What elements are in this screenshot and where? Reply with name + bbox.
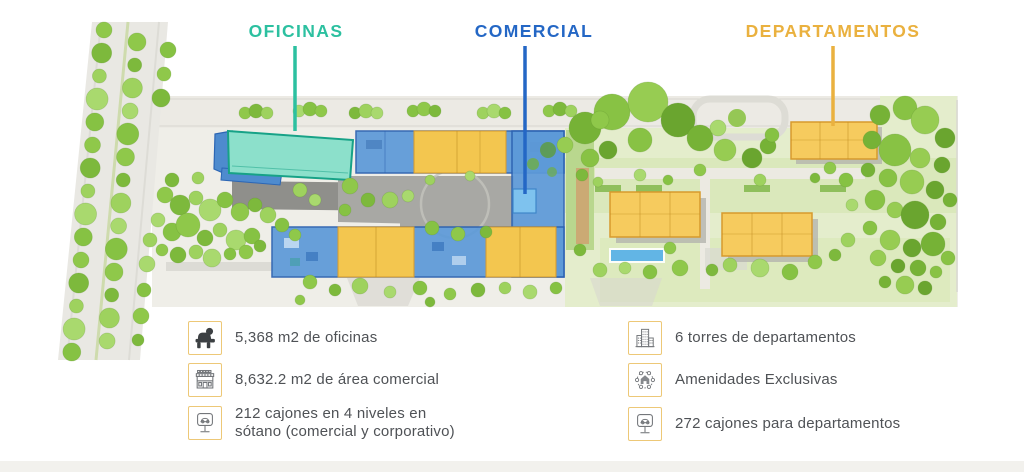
legend-item-commercial-area: 8,632.2 m2 de área comercial [188, 363, 439, 397]
legend-item-offices: 5,368 m2 de oficinas [188, 321, 377, 355]
legend-item-label: 6 torres de departamentos [675, 329, 856, 347]
storefront-icon [188, 363, 222, 397]
amenities-icon [628, 363, 662, 397]
apartment-towers-icon [628, 321, 662, 355]
legend-item-apartment-parking: 272 cajones para departamentos [628, 407, 900, 441]
footer-divider [0, 461, 1024, 472]
offices-building [214, 131, 353, 185]
legend-item-label: 212 cajones en 4 niveles en sótano (come… [235, 405, 473, 440]
office-worker-desk-icon [188, 321, 222, 355]
label-oficinas: OFICINAS [249, 21, 344, 41]
label-comercial: COMERCIAL [475, 21, 594, 41]
legend-item-amenities: Amenidades Exclusivas [628, 363, 838, 397]
legend-item-label: 8,632.2 m2 de área comercial [235, 371, 439, 389]
legend-item-label: 5,368 m2 de oficinas [235, 329, 377, 347]
parking-lift-icon [188, 406, 222, 440]
legend-item-commercial-parking: 212 cajones en 4 niveles en sótano (come… [188, 405, 473, 440]
label-departamentos: DEPARTAMENTOS [746, 21, 921, 41]
swimming-pool [609, 248, 665, 263]
legend-item-label: Amenidades Exclusivas [675, 371, 838, 389]
site-plan-page: OFICINAS COMERCIAL DEPARTAMENTOS 5,368 m… [0, 0, 1024, 472]
master-plan-rendering: OFICINAS COMERCIAL DEPARTAMENTOS [0, 0, 1024, 472]
parking-lift-icon [628, 407, 662, 441]
legend-item-towers: 6 torres de departamentos [628, 321, 856, 355]
legend-item-label: 272 cajones para departamentos [675, 415, 900, 433]
